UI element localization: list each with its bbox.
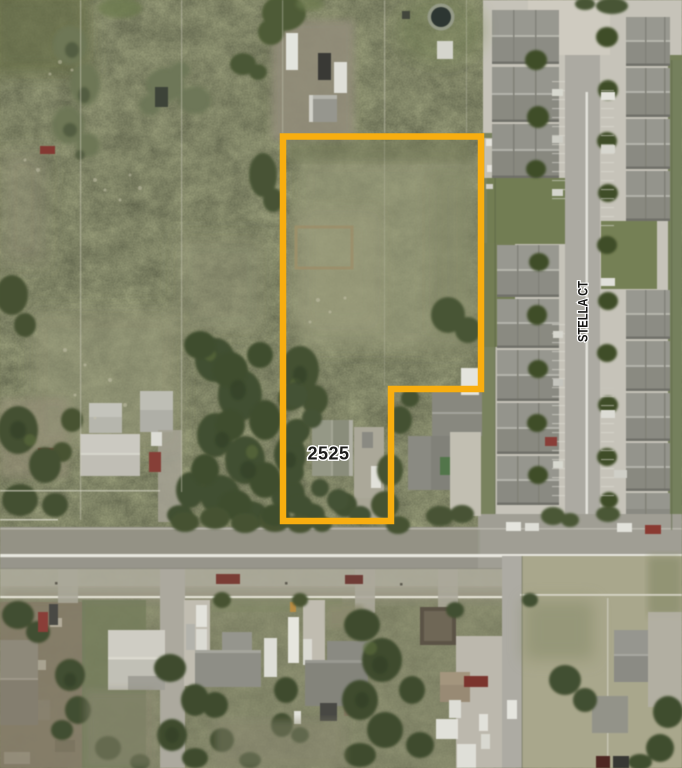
svg-text:2525: 2525 — [307, 444, 349, 464]
svg-text:STELLA CT: STELLA CT — [576, 280, 591, 342]
